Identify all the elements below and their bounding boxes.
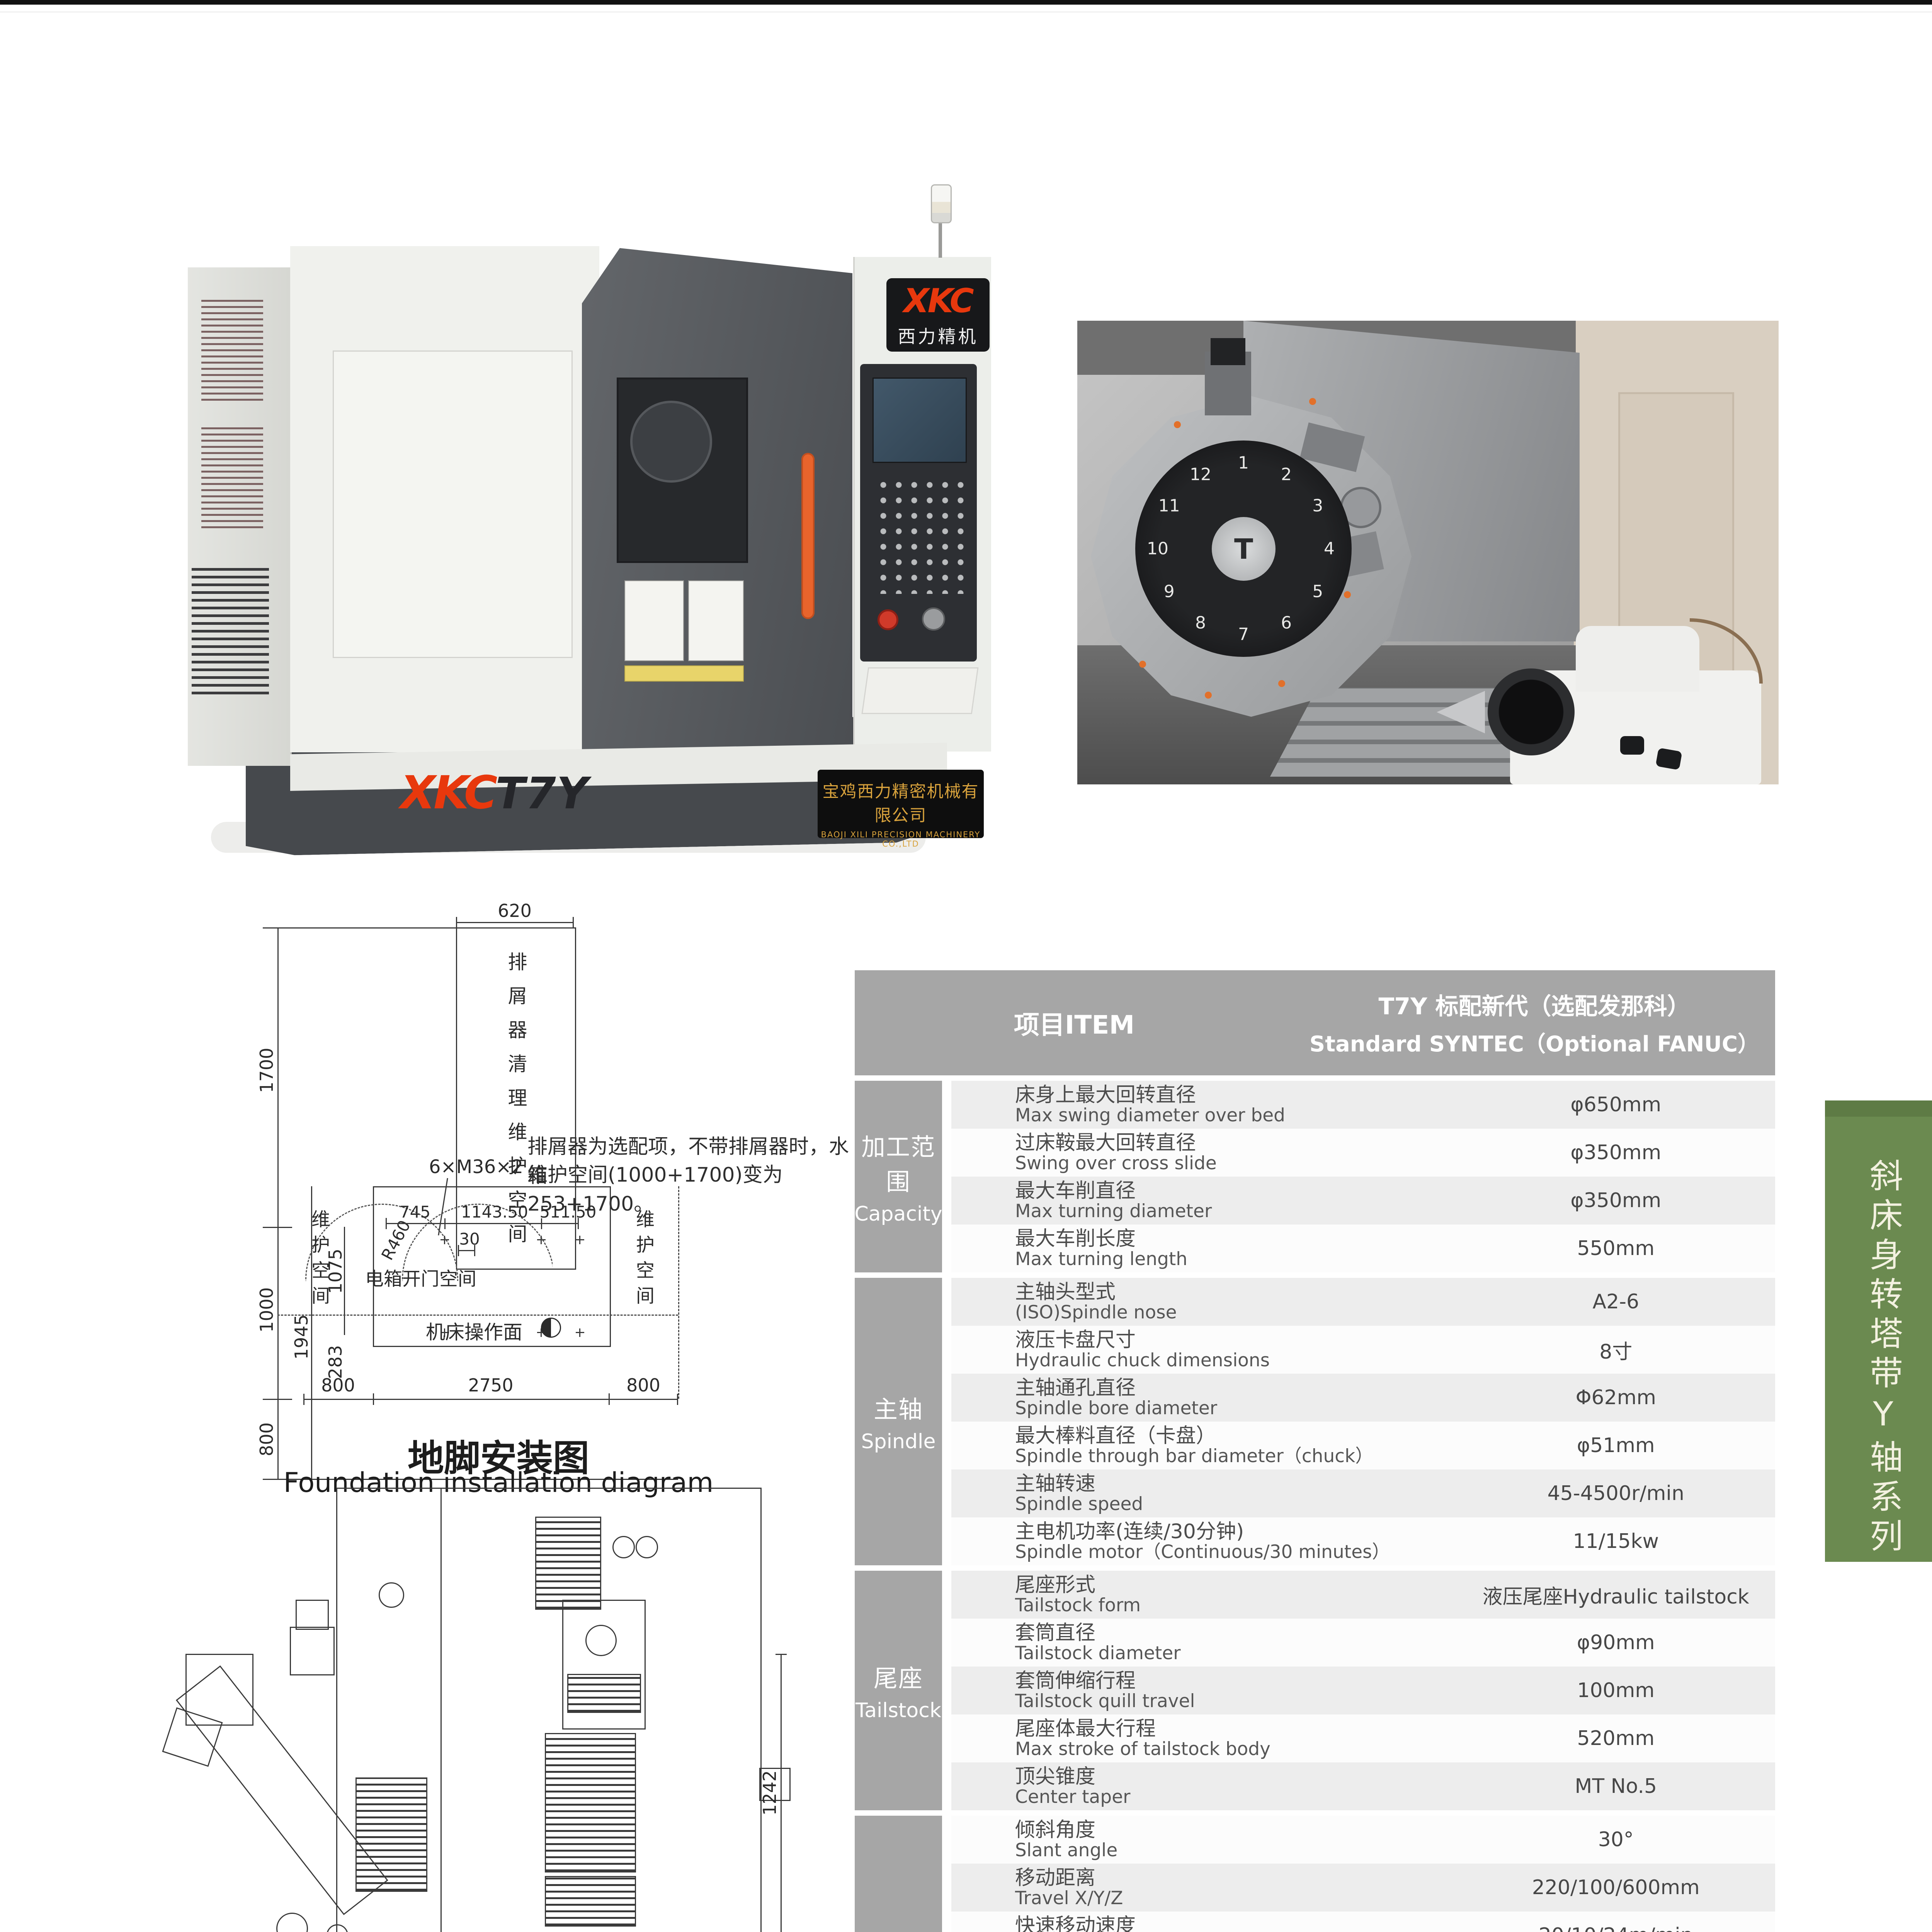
spec-value: A2-6 [1468, 1290, 1775, 1313]
spec-row: 主轴通孔直径Spindle bore diameterΦ62mm [951, 1374, 1775, 1422]
spec-item-label: 主轴头型式(ISO)Spindle nose [951, 1281, 1468, 1323]
warning-label [624, 580, 684, 661]
dim-745: 745 [400, 1202, 430, 1221]
spec-row: 快速移动速度Rapid traverse rate X/Y/Z20/10/24m… [951, 1912, 1775, 1932]
dim-1242-line [781, 1654, 782, 1932]
spec-item-label: 液压卡盘尺寸Hydraulic chuck dimensions [951, 1329, 1468, 1371]
spec-value: MT No.5 [1468, 1775, 1775, 1798]
spec-value: 550mm [1468, 1237, 1775, 1260]
turret-station-number: 9 [1164, 582, 1175, 602]
spec-section: 主轴Spindle主轴头型式(ISO)Spindle noseA2-6液压卡盘尺… [855, 1278, 1775, 1565]
spec-category: 尾座Tailstock [855, 1571, 942, 1810]
spec-row: 主轴头型式(ISO)Spindle noseA2-6 [951, 1278, 1775, 1326]
spec-header-item: 项目ITEM [855, 970, 1294, 1075]
panel-port [585, 1625, 617, 1656]
company-plate-zh: 宝鸡西力精密机械有限公司 [818, 778, 984, 826]
spec-row: 最大车削长度Max turning length550mm [951, 1225, 1775, 1272]
connector [612, 1536, 635, 1558]
turret-station-number: 3 [1312, 496, 1323, 516]
vent-grid-icon [192, 567, 269, 694]
spec-item-label: 过床鞍最大回转直径Swing over cross slide [951, 1132, 1468, 1173]
spec-value: 11/15kw [1468, 1530, 1775, 1553]
dim-1700: 1700 [256, 1048, 277, 1093]
tailstock-hump [1576, 626, 1699, 692]
anchor-bolt-icon [537, 1236, 546, 1244]
bottom-dim-line [303, 1399, 678, 1400]
maintenance-space-right: 维护空间 [630, 1209, 657, 1311]
spec-category-en: Spindle [861, 1430, 936, 1453]
spec-value: φ90mm [1468, 1631, 1775, 1654]
model-logo: XKCT7Y [400, 766, 589, 819]
dim-1242: 1242 [759, 1770, 780, 1815]
spec-item-label: 最大棒料直径（卡盘）Spindle through bar diameter（c… [951, 1425, 1468, 1466]
spec-value: 520mm [1468, 1727, 1775, 1750]
bolt-spec-label: 6×M36×2 [429, 1156, 523, 1178]
spec-row: 移动距离Travel X/Y/Z220/100/600mm [951, 1864, 1775, 1912]
orange-plug-icon [1139, 661, 1146, 668]
turret-station-number: 7 [1238, 625, 1249, 645]
door-handle [801, 453, 815, 619]
vent-grid-icon [201, 296, 263, 401]
vent-grid-icon [201, 424, 263, 528]
spec-row: 主电机功率(连续/30分钟)Spindle motor（Continuous/3… [951, 1517, 1775, 1565]
tailstock-grommet [1620, 736, 1644, 755]
turret-station-number: 5 [1312, 582, 1323, 602]
vent-grid-icon [567, 1674, 641, 1713]
side-view-drawing: 1242 588 2891 [162, 1484, 800, 1932]
spec-value: φ650mm [1468, 1093, 1775, 1116]
turret-hub-label: T [1234, 533, 1253, 565]
dim-620: 620 [498, 900, 532, 921]
spec-section: 尾座Tailstock尾座形式Tailstock form液压尾座Hydraul… [855, 1571, 1775, 1810]
spec-row: 最大车削直径Max turning diameterφ350mm [951, 1177, 1775, 1225]
series-banner: 斜床身转塔带Y轴系列 [1825, 1100, 1932, 1562]
catalog-page: XKC 西力精机 XKCT7Y 宝鸡西力精密机械有限公司 BAOJI XILI … [0, 0, 1932, 1932]
turret-station-number: 6 [1281, 613, 1292, 633]
spec-row: 最大棒料直径（卡盘）Spindle through bar diameter（c… [951, 1422, 1775, 1469]
orange-plug-icon [1205, 692, 1212, 699]
foundation-diagram: 620 排屑器清理维护空间 排屑器为选配项，不带排屑器时，水箱 维护空间(100… [247, 900, 866, 1495]
maintenance-space-left: 维护空间 [305, 1209, 332, 1311]
spec-row: 主轴转速Spindle speed45-4500r/min [951, 1469, 1775, 1517]
spec-value: 220/100/600mm [1468, 1876, 1775, 1899]
spec-category-zh: 床鞍 [874, 1928, 923, 1932]
cnc-screen [872, 378, 967, 463]
spec-category-zh: 尾座 [874, 1659, 923, 1694]
anchor-bolt-icon [576, 1236, 584, 1244]
spec-item-label: 尾座形式Tailstock form [951, 1574, 1468, 1616]
vent-grid-icon [545, 1733, 636, 1872]
spec-row: 倾斜角度Slant angle30° [951, 1816, 1775, 1864]
conveyor-motor-top [296, 1600, 329, 1630]
outer-top-line [277, 927, 574, 929]
inner-tick [444, 1218, 446, 1229]
cnc-tray [861, 667, 978, 714]
spec-section: 加工范围Capacity床身上最大回转直径Max swing diameter … [855, 1081, 1775, 1272]
dim-283: 283 [325, 1345, 346, 1379]
spec-category-zh: 加工范围 [855, 1128, 942, 1197]
spec-category: 加工范围Capacity [855, 1081, 942, 1272]
tailstock-chuck [1488, 668, 1575, 755]
spec-section: 床鞍Carriage倾斜角度Slant angle30°移动距离Travel X… [855, 1816, 1775, 1932]
spec-value: φ350mm [1468, 1189, 1775, 1212]
spec-item-label: 快速移动速度Rapid traverse rate X/Y/Z [951, 1915, 1468, 1932]
spec-row: 床身上最大回转直径Max swing diameter over bedφ650… [951, 1081, 1775, 1129]
spec-value: 45-4500r/min [1468, 1482, 1775, 1505]
spec-row: 套筒直径Tailstock diameterφ90mm [951, 1619, 1775, 1667]
spec-row: 尾座形式Tailstock form液压尾座Hydraulic tailstoc… [951, 1571, 1775, 1619]
turret-station-number: 1 [1238, 453, 1249, 473]
brand-badge: XKC 西力精机 [886, 278, 990, 352]
dim-b2750: 2750 [468, 1375, 513, 1396]
spec-item-label: 主电机功率(连续/30分钟)Spindle motor（Continuous/3… [951, 1521, 1468, 1562]
spec-category: 主轴Spindle [855, 1278, 942, 1565]
brand-badge-logo: XKC [903, 282, 973, 320]
connector [636, 1536, 658, 1558]
page-top-edge [0, 0, 1932, 5]
bottom-tick [609, 1393, 610, 1405]
orange-plug-icon [1344, 591, 1351, 598]
tickA [263, 1227, 292, 1228]
anchor-bolt-icon [440, 1236, 449, 1244]
spec-item-label: 主轴通孔直径Spindle bore diameter [951, 1377, 1468, 1418]
spec-category-zh: 主轴 [874, 1390, 923, 1425]
signal-lamp [931, 184, 952, 223]
cnc-keypad [872, 474, 964, 594]
spec-item-label: 倾斜角度Slant angle [951, 1819, 1468, 1861]
turret-station-number: 12 [1190, 464, 1211, 484]
page-top-hairline [0, 12, 1932, 12]
cnc-knob [922, 607, 945, 631]
dim-b800r: 800 [626, 1375, 660, 1396]
spec-item-label: 套筒直径Tailstock diameter [951, 1622, 1468, 1663]
company-plate-en: BAOJI XILI PRECISION MACHINERY CO.,LTD [818, 830, 984, 849]
caster-wheel-icon [276, 1913, 308, 1932]
spec-table-header: 项目ITEM T7Y 标配新代（选配发那科） Standard SYNTEC（O… [855, 970, 1775, 1075]
spec-item-label: 套筒伸缩行程Tailstock quill travel [951, 1670, 1468, 1711]
window-turret-glimpse [630, 401, 712, 483]
spec-row: 液压卡盘尺寸Hydraulic chuck dimensions8寸 [951, 1326, 1775, 1374]
spec-category: 床鞍Carriage [855, 1816, 942, 1932]
spec-category-en: Tailstock [855, 1699, 941, 1722]
spec-value: 100mm [1468, 1679, 1775, 1702]
dim-30-line [458, 1250, 475, 1251]
warning-label [688, 580, 744, 661]
spec-value: φ350mm [1468, 1141, 1775, 1164]
emergency-stop-button [878, 609, 898, 630]
orange-plug-icon [1174, 421, 1181, 428]
orange-plug-icon [1309, 398, 1316, 405]
orange-plug-icon [1278, 680, 1285, 687]
turret-interior-photo: 123456789101112 T [1077, 321, 1779, 784]
dim-1945: 1945 [291, 1314, 312, 1359]
door-space-label: 电箱开门空间 [365, 1264, 476, 1291]
inner-dim-line [386, 1223, 579, 1224]
machine-front-door [333, 350, 573, 658]
model-logo-model: T7Y [495, 769, 588, 819]
spec-item-label: 尾座体最大行程Max stroke of tailstock body [951, 1718, 1468, 1759]
spec-sections: 加工范围Capacity床身上最大回转直径Max swing diameter … [855, 1081, 1775, 1932]
spec-row: 套筒伸缩行程Tailstock quill travel100mm [951, 1667, 1775, 1714]
right-boundary-dashed [678, 1186, 679, 1399]
spec-value: 8寸 [1468, 1335, 1775, 1364]
conveyor-motor [290, 1627, 335, 1675]
spec-value: φ51mm [1468, 1434, 1775, 1457]
spec-item-label: 移动距离Travel X/Y/Z [951, 1867, 1468, 1908]
turret-hub: T [1212, 517, 1276, 581]
spec-table: 项目ITEM T7Y 标配新代（选配发那科） Standard SYNTEC（O… [855, 970, 1775, 1932]
model-logo-brand: XKC [400, 766, 495, 819]
spec-category-en: Capacity [854, 1202, 942, 1226]
spec-row: 顶尖锥度Center taperMT No.5 [951, 1762, 1775, 1810]
spec-header-model-zh: T7Y 标配新代（选配发那科） [1378, 988, 1690, 1021]
turret-station-number: 11 [1158, 496, 1180, 516]
dim-b800l: 800 [321, 1375, 355, 1396]
tickA [263, 927, 292, 929]
series-banner-text: 斜床身转塔带Y轴系列 [1859, 1158, 1908, 1558]
spec-header-model-en: Standard SYNTEC（Optional FANUC） [1310, 1027, 1759, 1058]
turret-station-number: 8 [1195, 613, 1206, 633]
spec-header-model: T7Y 标配新代（选配发那科） Standard SYNTEC（Optional… [1294, 970, 1775, 1075]
vent-grid-icon [545, 1876, 636, 1927]
tailstock-center-cone [1437, 691, 1485, 733]
spec-value: 30° [1468, 1828, 1775, 1851]
spec-value: Φ62mm [1468, 1386, 1775, 1409]
dim-620-line [456, 922, 574, 923]
bottom-tick [373, 1393, 374, 1405]
spec-value: 液压尾座Hydraulic tailstock [1468, 1580, 1775, 1609]
datum-symbol-icon [541, 1318, 561, 1338]
warning-strip [624, 665, 744, 682]
spec-item-label: 顶尖锥度Center taper [951, 1766, 1468, 1807]
operation-face-label: 机床操作面 [426, 1317, 522, 1345]
centerline [277, 1315, 678, 1316]
spec-item-label: 最大车削直径Max turning diameter [951, 1180, 1468, 1221]
outer-left-line [277, 927, 279, 1480]
brand-badge-zh: 西力精机 [898, 323, 978, 348]
machine-photo: XKC 西力精机 XKCT7Y 宝鸡西力精密机械有限公司 BAOJI XILI … [165, 169, 990, 888]
panel-seam [440, 1488, 442, 1932]
spec-item-label: 床身上最大回转直径Max swing diameter over bed [951, 1084, 1468, 1126]
dim-30: 30 [459, 1230, 480, 1248]
spec-item-label: 主轴转速Spindle speed [951, 1473, 1468, 1514]
company-plate: 宝鸡西力精密机械有限公司 BAOJI XILI PRECISION MACHIN… [818, 770, 984, 838]
turret-station-number: 10 [1147, 539, 1168, 559]
spec-item-label: 最大车削长度Max turning length [951, 1228, 1468, 1269]
turret-station-number: 2 [1281, 464, 1292, 484]
turret-station-number: 4 [1324, 539, 1335, 559]
tickA [263, 1399, 292, 1400]
dim-511: 511.50 [540, 1202, 597, 1221]
spec-row: 过床鞍最大回转直径Swing over cross slideφ350mm [951, 1129, 1775, 1177]
dim-1000: 1000 [256, 1287, 277, 1332]
anchor-bolt-icon [576, 1328, 584, 1337]
lift-ring [379, 1582, 404, 1608]
spec-row: 尾座体最大行程Max stroke of tailstock body520mm [951, 1714, 1775, 1762]
spec-value: 20/10/24m/min [1468, 1924, 1775, 1932]
vent-grid-icon [535, 1517, 601, 1610]
dim-1143: 1143.50 [461, 1202, 528, 1221]
